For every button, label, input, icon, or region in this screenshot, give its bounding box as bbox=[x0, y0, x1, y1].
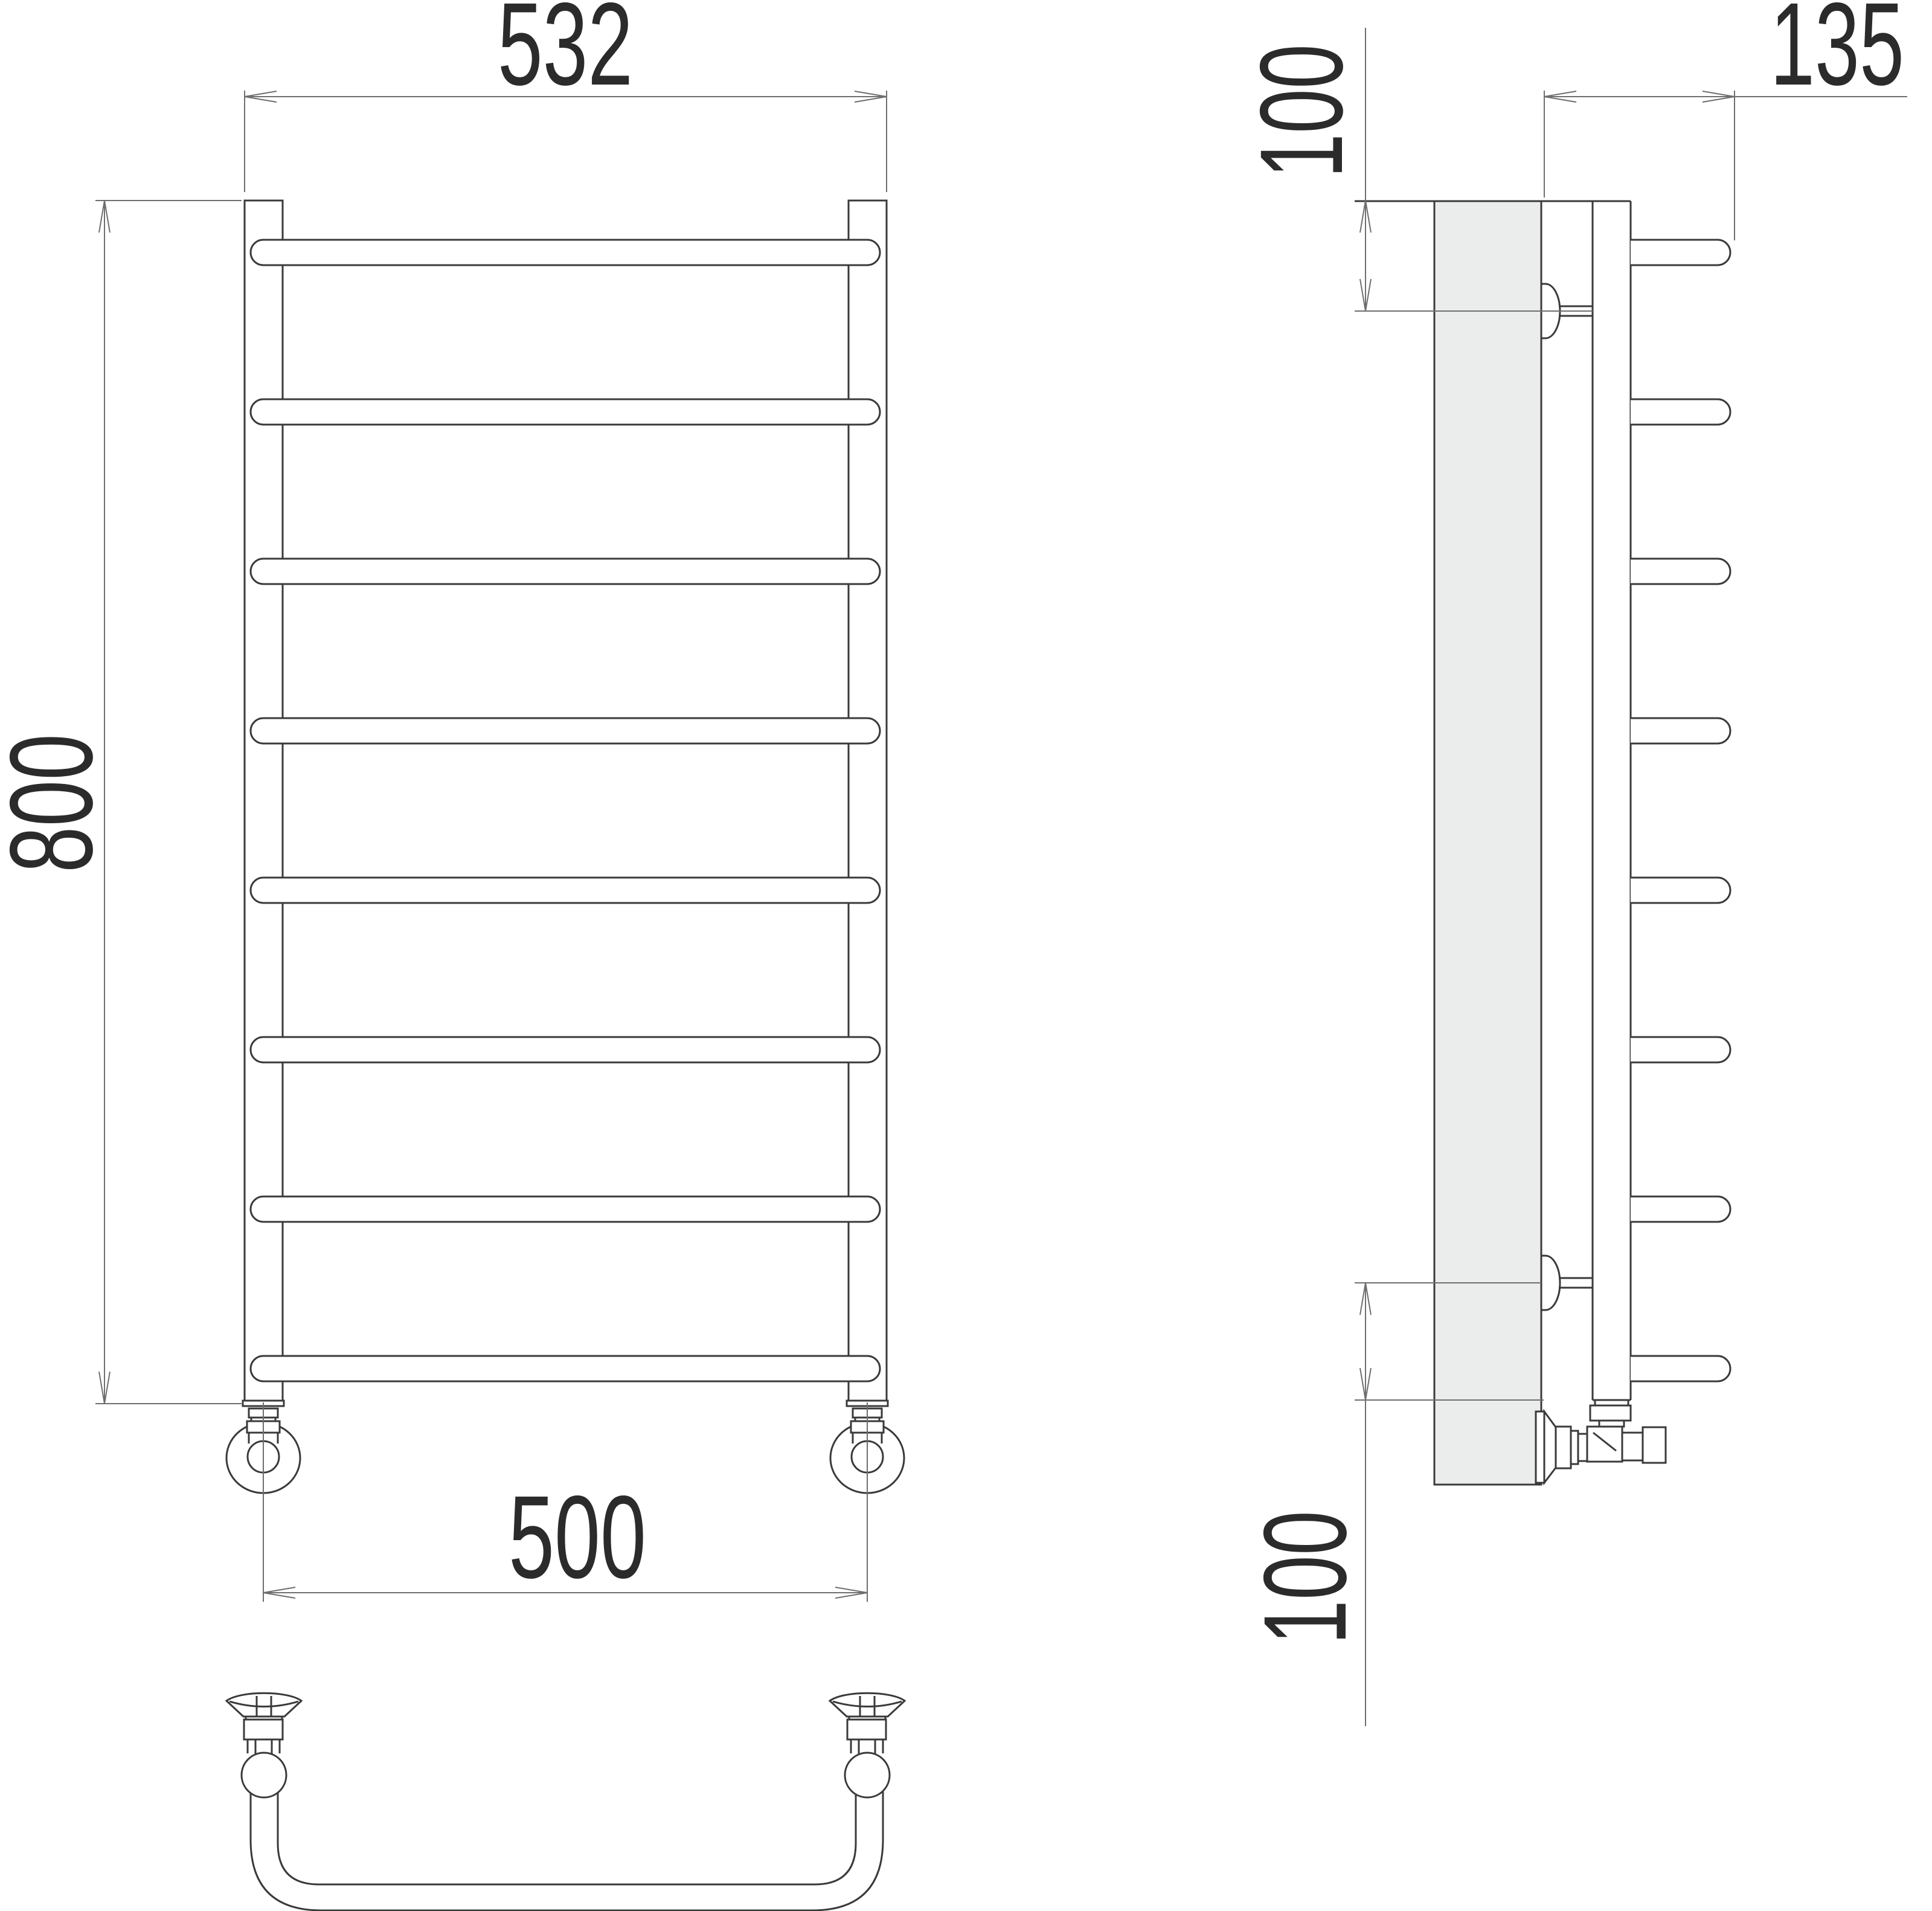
dim-depth-label: 135 bbox=[1770, 0, 1904, 110]
front-rung bbox=[251, 559, 880, 584]
dim-overall-width: 532 bbox=[245, 0, 887, 192]
front-rung bbox=[251, 1356, 880, 1381]
dim-overall-height-label: 800 bbox=[0, 734, 117, 873]
wall-flange bbox=[1536, 1412, 1544, 1483]
side-rung bbox=[1631, 240, 1730, 265]
extension-line bbox=[1544, 91, 1735, 240]
nut bbox=[847, 1720, 886, 1739]
dim-depth: 135 bbox=[1544, 0, 1907, 240]
valve-stem bbox=[1578, 1434, 1587, 1461]
dim-connection-spacing: 500 bbox=[263, 1402, 867, 1603]
tap-handle bbox=[830, 1693, 905, 1717]
nut bbox=[244, 1720, 283, 1739]
bottom-right-fitting bbox=[830, 1693, 905, 1797]
side-view bbox=[1355, 201, 1730, 1485]
front-rung bbox=[251, 240, 880, 265]
valve-step bbox=[1571, 1431, 1578, 1464]
bottom-view bbox=[226, 1693, 905, 1910]
bracket-flange bbox=[1541, 1256, 1560, 1310]
side-rung bbox=[1631, 718, 1730, 744]
bottom-u-tube bbox=[251, 1783, 883, 1910]
dim-connection-spacing-label: 500 bbox=[509, 1471, 646, 1603]
side-rung bbox=[1631, 559, 1730, 584]
side-rung bbox=[1631, 878, 1730, 903]
front-rung bbox=[251, 399, 880, 425]
dim-bottom-bracket-offset-label: 100 bbox=[1239, 1511, 1371, 1645]
bottom-left-fitting bbox=[226, 1693, 301, 1797]
dim-overall-height: 800 bbox=[0, 201, 242, 1404]
side-rung bbox=[1631, 1037, 1730, 1062]
valve-collar bbox=[1556, 1427, 1571, 1468]
front-rung bbox=[251, 1196, 880, 1222]
flange-cone bbox=[1544, 1412, 1556, 1483]
side-plate bbox=[1593, 201, 1631, 1400]
tap-handle bbox=[226, 1693, 301, 1717]
valve-ball bbox=[845, 1753, 890, 1797]
side-bottom-valve bbox=[1536, 1400, 1666, 1483]
front-rung bbox=[251, 878, 880, 903]
outlet-arm bbox=[1622, 1433, 1643, 1460]
extension-line bbox=[95, 201, 242, 1404]
valve-ball bbox=[242, 1753, 286, 1797]
drawing-canvas: 532 135 800 500 100 bbox=[0, 0, 1932, 1911]
front-rung bbox=[251, 1037, 880, 1062]
valve-elbow-body bbox=[1587, 1427, 1622, 1462]
bracket-stud bbox=[1559, 1278, 1593, 1288]
outlet-block bbox=[1643, 1427, 1666, 1463]
side-rung bbox=[1631, 1196, 1730, 1222]
side-rung bbox=[1631, 399, 1730, 425]
union-nut bbox=[1590, 1405, 1631, 1421]
technical-drawing: 532 135 800 500 100 bbox=[0, 0, 1932, 1911]
front-view bbox=[226, 201, 904, 1493]
front-rung bbox=[251, 718, 880, 744]
wall-bracket-bottom bbox=[1541, 1256, 1593, 1310]
wall bbox=[1434, 201, 1541, 1485]
dim-overall-width-label: 532 bbox=[498, 0, 633, 110]
dim-top-bracket-offset-label: 100 bbox=[1236, 44, 1367, 178]
side-rung bbox=[1631, 1356, 1730, 1381]
